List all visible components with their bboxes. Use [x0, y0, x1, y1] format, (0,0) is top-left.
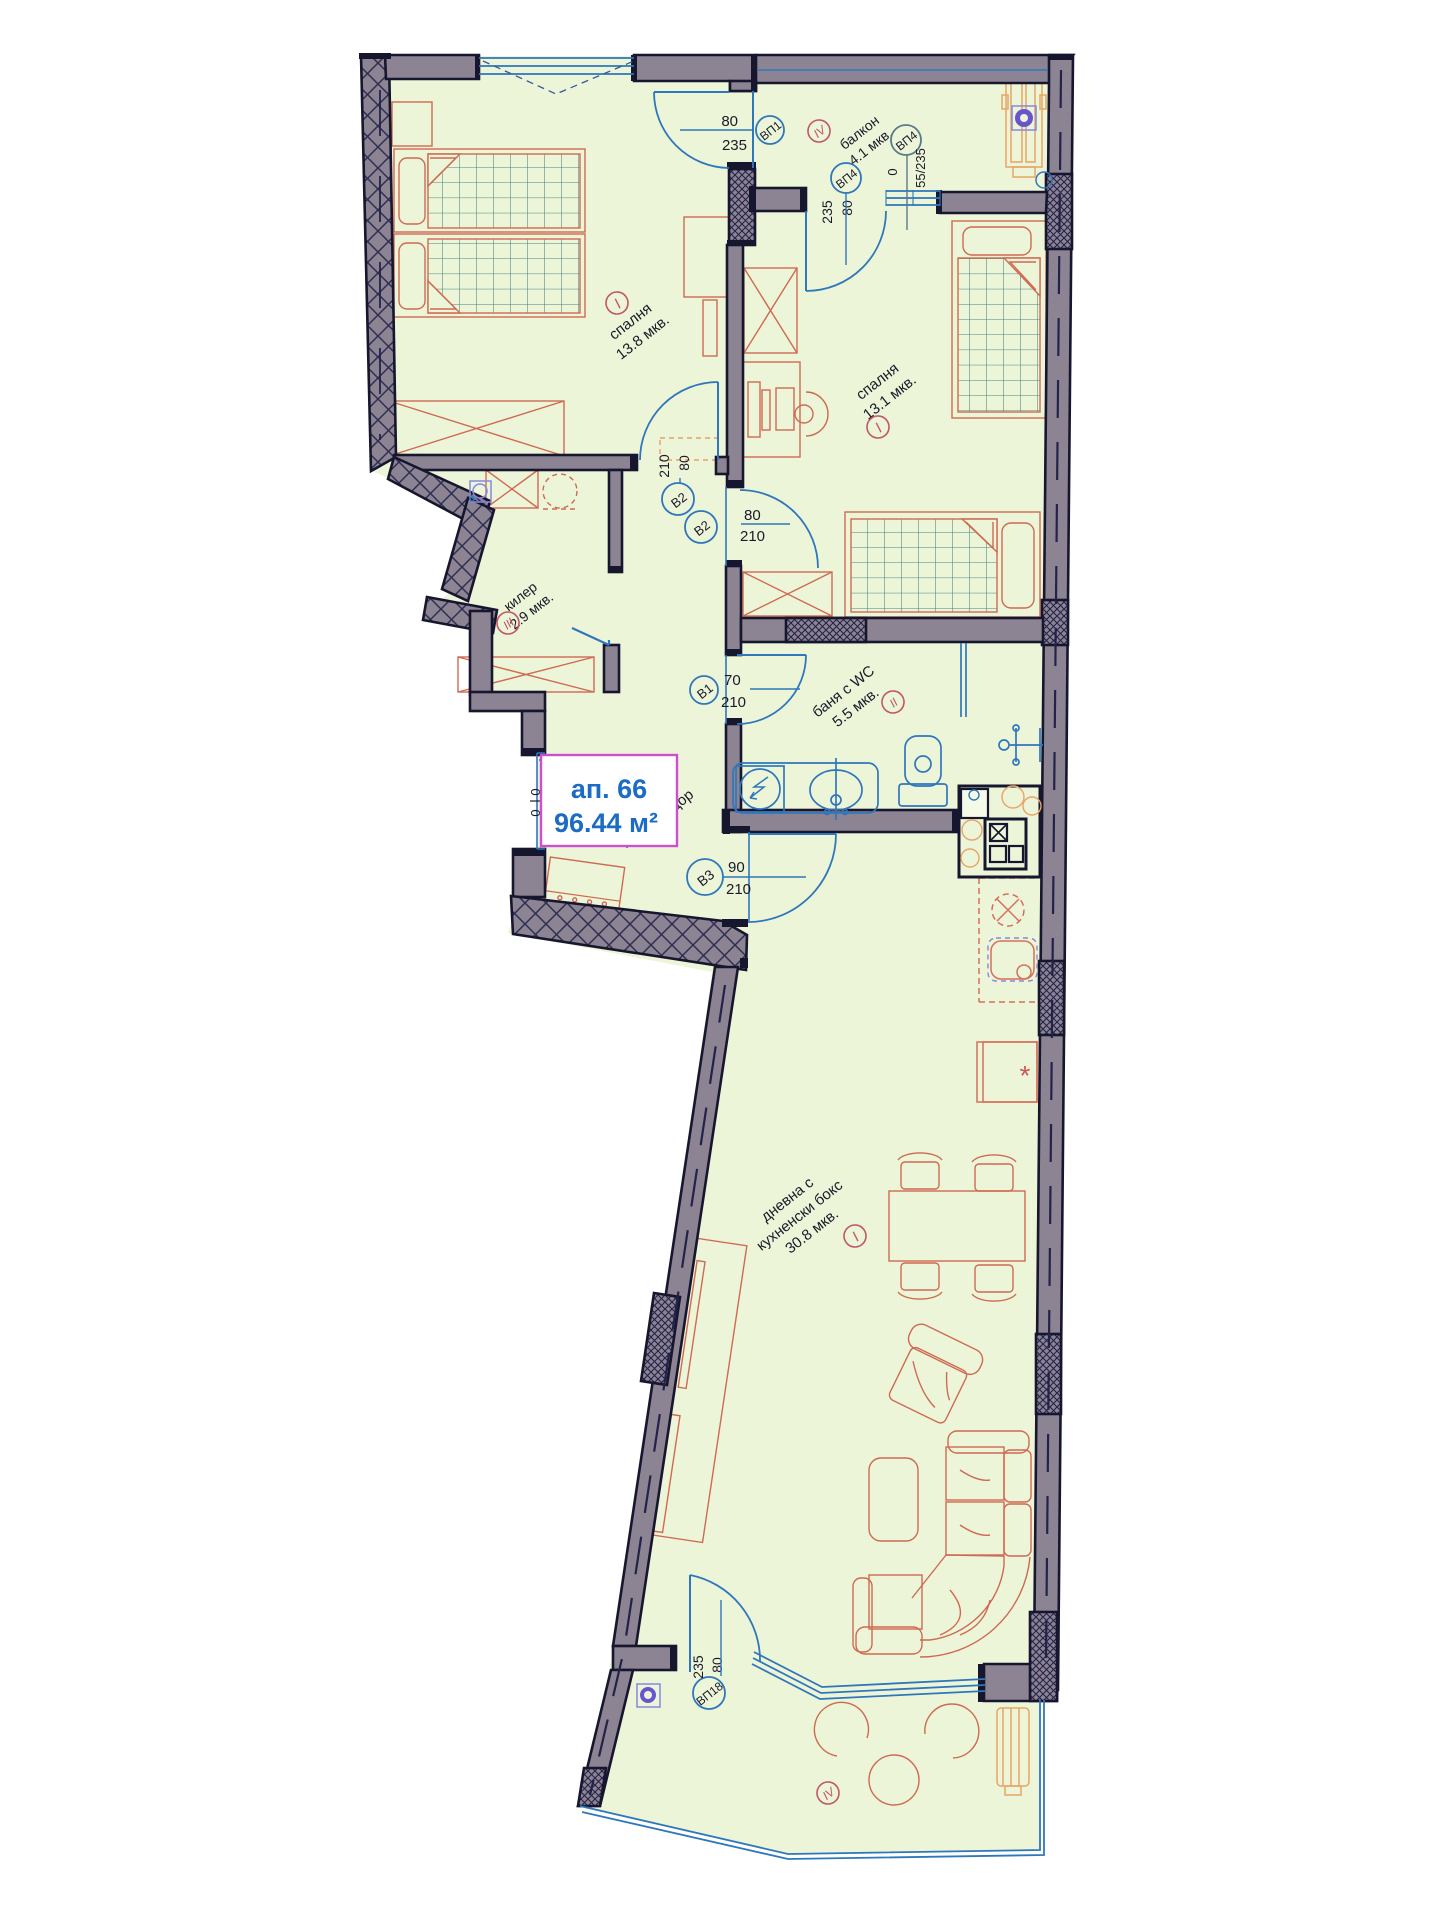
svg-text:210: 210 [656, 454, 672, 478]
svg-text:80: 80 [839, 200, 855, 216]
svg-text:210: 210 [726, 881, 751, 898]
svg-text:80: 80 [721, 113, 738, 130]
svg-text:*: * [1020, 1060, 1031, 1091]
svg-text:70: 70 [724, 672, 741, 689]
svg-text:80: 80 [744, 507, 761, 524]
svg-text:210: 210 [740, 528, 765, 545]
svg-text:96.44 м²: 96.44 м² [554, 808, 658, 838]
svg-text:ап. 66: ап. 66 [571, 774, 647, 804]
svg-text:235: 235 [690, 1655, 706, 1679]
svg-text:235: 235 [819, 200, 835, 224]
svg-text:55/235: 55/235 [913, 148, 928, 188]
svg-text:80: 80 [709, 1657, 725, 1673]
svg-text:235: 235 [722, 137, 747, 154]
svg-text:210: 210 [721, 694, 746, 711]
svg-text:90: 90 [728, 859, 745, 876]
svg-text:80: 80 [676, 455, 692, 471]
svg-text:0: 0 [885, 168, 900, 175]
